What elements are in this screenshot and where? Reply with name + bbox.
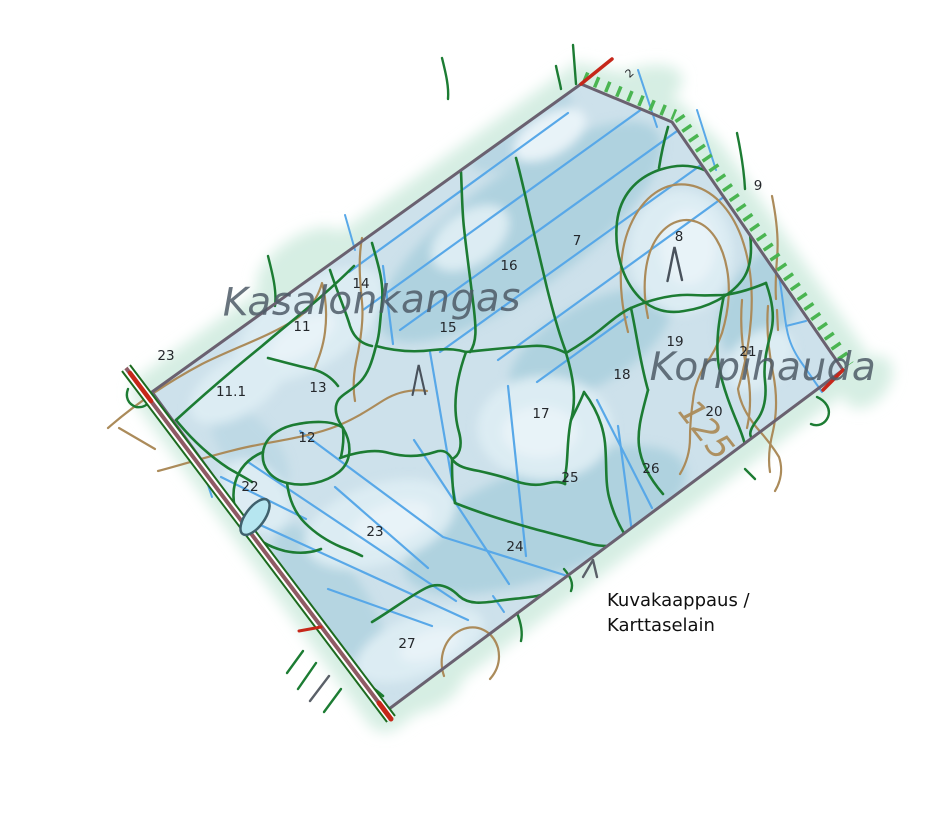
place-name-label: Korpihauda xyxy=(650,345,877,390)
parcel-label: 15 xyxy=(439,320,456,336)
parcel-label: 23 xyxy=(157,348,174,364)
parcel-label: 27 xyxy=(398,636,415,652)
parcel-label: 24 xyxy=(506,539,523,555)
parcel-label: 8 xyxy=(675,229,684,245)
parcel-label: 9 xyxy=(754,178,763,194)
map-viewport[interactable]: 27891111.1121314151617181920212223232425… xyxy=(0,0,932,830)
parcel-label: 17 xyxy=(532,406,549,422)
parcel-label: 18 xyxy=(613,367,630,383)
parcel-label: 12 xyxy=(298,430,315,446)
parcel-label: 16 xyxy=(500,258,517,274)
caption-line-1: Kuvakaappaus / xyxy=(607,588,750,613)
place-name-label: Kasalonkangas xyxy=(222,275,521,325)
parcel-label: 13 xyxy=(309,380,326,396)
map-canvas[interactable]: 27891111.1121314151617181920212223232425… xyxy=(0,0,932,830)
parcel-label: 22 xyxy=(241,479,258,495)
parcel-label: 26 xyxy=(642,461,659,477)
parcel-label: 23 xyxy=(366,524,383,540)
caption-line-2: Karttaselain xyxy=(607,613,750,638)
screenshot-caption: Kuvakaappaus / Karttaselain xyxy=(607,588,750,638)
parcel-label: 11.1 xyxy=(216,384,246,400)
parcel-label: 25 xyxy=(561,470,578,486)
parcel-label: 7 xyxy=(573,233,582,249)
